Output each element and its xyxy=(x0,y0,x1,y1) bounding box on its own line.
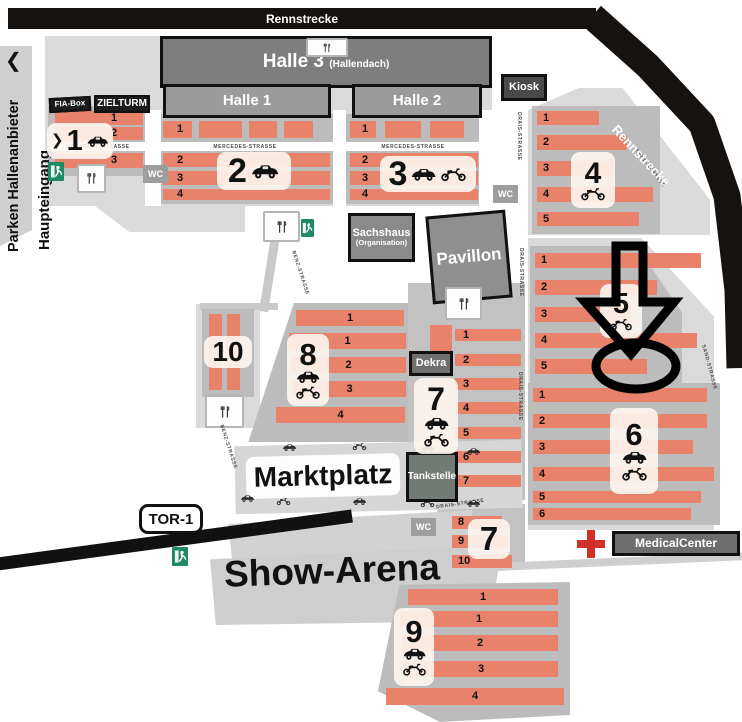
food-icon xyxy=(274,219,290,235)
row-label: 2 xyxy=(177,155,183,166)
row-label: 9 xyxy=(458,536,464,547)
tor1-sign: TOR-1 xyxy=(139,504,203,534)
row-label: 1 xyxy=(362,124,368,135)
zone4-badge: 4 xyxy=(571,152,615,208)
fia-box-building: FIA-Box xyxy=(49,96,92,113)
emergency-exit-icon xyxy=(48,162,64,181)
street-label-drais: DRAIS-STRASSE xyxy=(516,112,522,161)
row-label: 3 xyxy=(111,155,117,166)
zone9-row: 4 xyxy=(386,688,564,705)
row-label: 1 xyxy=(111,113,117,124)
motorcycle-icon xyxy=(609,318,633,331)
row-label: 1 xyxy=(347,313,353,324)
row-label: 3 xyxy=(543,163,549,174)
row-label: 1 xyxy=(344,336,350,347)
road-vertical-1 xyxy=(145,110,161,206)
row-label: 2 xyxy=(463,355,469,366)
car-icon xyxy=(295,370,321,384)
medical-cross-icon xyxy=(577,530,605,558)
zone2-row: 4 xyxy=(163,189,330,200)
row-label: 2 xyxy=(477,638,483,649)
zone9-number: 9 xyxy=(405,618,422,646)
zone6-row: 6 xyxy=(533,508,691,520)
zielturm-building: ZIELTURM xyxy=(94,95,150,113)
pavillon-label: Pavillon xyxy=(436,245,502,268)
zone2-row-segmented: 1 xyxy=(163,121,313,138)
row-label: 5 xyxy=(541,361,547,372)
zone7-row: 2 xyxy=(455,354,521,366)
zone3-number: 3 xyxy=(389,159,408,190)
row-label: 4 xyxy=(177,189,183,200)
road-mercedes-z2: MERCEDES-STRASSE xyxy=(157,142,333,151)
motorcycle-icon xyxy=(276,497,291,506)
food-icon xyxy=(217,404,233,420)
food-stand xyxy=(77,164,106,193)
food-stand xyxy=(263,211,300,242)
medical-center-building: MedicalCenter xyxy=(612,531,740,556)
row-label: 4 xyxy=(337,410,343,421)
halle2-building: Halle 2 xyxy=(352,84,482,118)
stall-segment xyxy=(385,121,421,138)
motorcycle-icon xyxy=(440,167,467,182)
row-label: 4 xyxy=(541,335,547,346)
zone10-badge: 10 xyxy=(204,336,252,368)
row-label: 4 xyxy=(543,189,549,200)
row-label: 2 xyxy=(362,155,368,166)
wc-label: WC xyxy=(416,522,431,532)
zone2-number: 2 xyxy=(228,156,247,187)
sachshaus-subtitle: (Organisation) xyxy=(356,239,407,247)
road-vertical-3 xyxy=(479,110,493,206)
row-label: 6 xyxy=(539,509,545,520)
kiosk-label: Kiosk xyxy=(509,82,539,94)
car-icon xyxy=(352,497,367,506)
zone7-row: 3 xyxy=(455,378,521,390)
row-label: 3 xyxy=(362,173,368,184)
row-label: 5 xyxy=(543,214,549,225)
food-stand xyxy=(445,287,482,320)
car-icon xyxy=(402,647,427,661)
row-label: 2 xyxy=(345,360,351,371)
motorcycle-icon xyxy=(295,386,321,399)
zone5-number: 5 xyxy=(613,291,629,317)
row-label: 3 xyxy=(346,384,352,395)
stall-segment xyxy=(249,121,276,138)
zone5-row: 5 xyxy=(535,359,647,374)
exit-icon xyxy=(50,164,63,179)
street-label-mercedes: MERCEDES-STRASSE xyxy=(381,144,444,150)
car-icon xyxy=(621,450,648,465)
row-label: 4 xyxy=(463,403,469,414)
exit-icon xyxy=(302,221,313,235)
zone2-badge: 2 xyxy=(217,152,291,190)
street-label-benz: BENZ-STRASSE xyxy=(290,250,310,296)
zone7-row: 1 xyxy=(455,329,521,341)
row-label: 5 xyxy=(539,492,545,503)
tankstelle-label: Tankstelle xyxy=(408,472,456,483)
row-label: 3 xyxy=(177,173,183,184)
tor1-label: TOR-1 xyxy=(149,511,194,528)
emergency-exit-icon xyxy=(172,547,188,566)
zone5-row: 1 xyxy=(535,253,701,268)
exit-icon xyxy=(174,549,187,564)
food-icon xyxy=(456,296,472,312)
car-icon xyxy=(282,443,297,452)
row-label: 7 xyxy=(463,476,469,487)
zone7-number: 7 xyxy=(480,524,498,554)
rennstrecke-top-banner: Rennstrecke xyxy=(8,8,596,29)
row-label: 10 xyxy=(458,556,470,567)
kiosk-building: Kiosk xyxy=(501,74,547,101)
zone9-row: 1 xyxy=(408,589,558,605)
food-icon xyxy=(321,42,333,54)
row-label: 2 xyxy=(541,282,547,293)
zone7-row: 7 xyxy=(455,475,521,487)
motorcycle-icon xyxy=(580,187,606,201)
parken-hallenanbieter-label: Parken Hallenanbieter xyxy=(6,72,22,252)
row-label: 1 xyxy=(541,255,547,266)
zone9-badge: 9 xyxy=(394,608,434,686)
wc-label: WC xyxy=(498,189,513,199)
zone6-row: 1 xyxy=(533,388,707,402)
row-label: 5 xyxy=(463,428,469,439)
car-icon xyxy=(240,494,255,503)
row-label: 4 xyxy=(539,469,545,480)
motorcycle-icon xyxy=(402,663,427,676)
row-label: 1 xyxy=(543,113,549,124)
row-label: 4 xyxy=(472,691,478,702)
emergency-exit-icon xyxy=(301,219,314,237)
event-site-map: MERCEDES-STRASSE MERCEDES-STRASSE MERCED… xyxy=(0,0,742,722)
zone7-number: 7 xyxy=(427,385,445,414)
marktplatz-sign: Marktplatz xyxy=(245,453,400,499)
row-label: 2 xyxy=(543,137,549,148)
dekra-label: Dekra xyxy=(416,358,447,370)
halle1-label: Halle 1 xyxy=(223,93,271,109)
zone10-number: 10 xyxy=(212,339,243,364)
food-icon xyxy=(84,171,99,186)
zone7-bottom-badge: 7 xyxy=(468,519,510,559)
row-label: 1 xyxy=(539,390,545,401)
car-icon xyxy=(410,167,437,182)
wc-box: WC xyxy=(493,185,518,203)
row-label: 2 xyxy=(539,416,545,427)
show-arena-label: Show-Arena xyxy=(223,546,440,595)
road-mercedes-z3: MERCEDES-STRASSE xyxy=(345,142,481,151)
row-label: 3 xyxy=(539,442,545,453)
street-label-drais: DRAIS-STRASSE xyxy=(518,248,524,297)
parking-chevron-icon: ❮ xyxy=(5,48,22,73)
halle2-label: Halle 2 xyxy=(393,93,441,109)
zone3-row-segmented: 1 xyxy=(350,121,477,138)
zone4-number: 4 xyxy=(585,160,602,187)
rennstrecke-label: Rennstrecke xyxy=(266,12,338,26)
marktplatz-label: Marktplatz xyxy=(253,458,392,494)
row-label: 3 xyxy=(463,379,469,390)
zone1-badge: ❯ 1 xyxy=(47,123,113,159)
zielturm-label: ZIELTURM xyxy=(97,99,147,110)
road-vertical-2 xyxy=(333,110,346,206)
tankstelle-building: Tankstelle xyxy=(406,452,458,502)
stall-segment xyxy=(284,121,313,138)
benz-road-edge-upper xyxy=(259,236,280,312)
zone8-number: 8 xyxy=(299,341,316,369)
wc-label: WC xyxy=(148,169,163,179)
island-zone1-tab xyxy=(95,206,245,232)
street-label-drais: DRAIS-STRASSE xyxy=(517,372,523,421)
zone6-number: 6 xyxy=(625,421,642,449)
zone8-row: 4 xyxy=(276,407,405,423)
car-icon xyxy=(86,134,109,149)
stall-segment xyxy=(430,121,464,138)
motorcycle-icon xyxy=(352,442,367,451)
motorcycle-icon xyxy=(621,467,648,481)
dekra-building: Dekra xyxy=(409,351,453,376)
fia-box-label: FIA-Box xyxy=(54,100,85,110)
zone8-row: 1 xyxy=(296,310,404,326)
halle3-food-stand xyxy=(306,38,348,57)
zone7-row: 6 xyxy=(455,451,521,463)
chevron-left-glyph: ❮ xyxy=(5,50,22,72)
zone3-badge: 3 xyxy=(380,156,476,192)
sachshaus-building: Sachshaus (Organisation) xyxy=(348,213,415,262)
row-label: 3 xyxy=(541,309,547,320)
zone6-badge: 6 xyxy=(610,408,658,494)
row-label: 8 xyxy=(458,517,464,528)
zone7-row: 4 xyxy=(455,402,521,414)
zone1-number: 1 xyxy=(67,128,83,154)
zone7-badge: 7 xyxy=(414,378,458,454)
motorcycle-icon xyxy=(420,499,435,508)
entrance-arrow-icon: ❯ xyxy=(51,134,64,148)
row-label: 4 xyxy=(362,189,368,200)
car-icon xyxy=(466,499,481,508)
wc-box: WC xyxy=(143,165,168,183)
medical-center-label: MedicalCenter xyxy=(635,537,717,550)
row-label: 1 xyxy=(463,330,469,341)
row-label: 1 xyxy=(177,124,183,135)
zone5-badge: 5 xyxy=(600,284,642,338)
street-label-mercedes: MERCEDES-STRASSE xyxy=(213,144,276,150)
zone4-row: 5 xyxy=(537,212,639,226)
food-stand xyxy=(205,395,244,428)
zone7-row: 5 xyxy=(455,427,521,439)
car-icon xyxy=(250,163,280,180)
row-label: 3 xyxy=(478,664,484,675)
car-icon xyxy=(466,447,481,456)
wc-box: WC xyxy=(411,518,436,536)
car-icon xyxy=(423,416,450,431)
zone8-badge: 8 xyxy=(287,334,329,406)
zone4-row: 1 xyxy=(537,111,599,125)
motorcycle-icon xyxy=(423,433,450,447)
show-arena-label-wrap: Show-Arena xyxy=(223,546,440,596)
halle3-subtitle: (Hallendach) xyxy=(329,59,389,70)
zone7-strip-stall xyxy=(430,325,452,352)
stall-segment xyxy=(199,121,242,138)
row-label: 1 xyxy=(476,614,482,625)
halle1-building: Halle 1 xyxy=(163,84,331,118)
row-label: 1 xyxy=(480,592,486,603)
